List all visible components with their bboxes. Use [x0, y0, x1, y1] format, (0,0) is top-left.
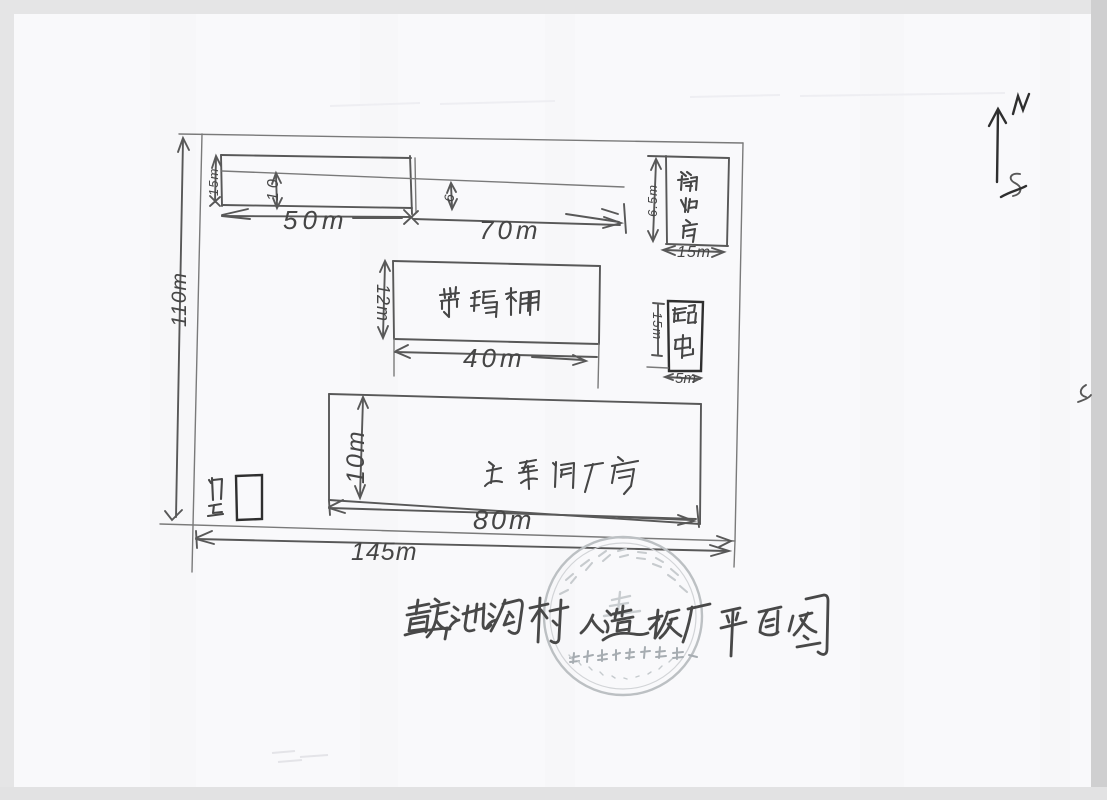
svg-text:6: 6 — [441, 194, 457, 202]
svg-text:110m: 110m — [168, 272, 191, 327]
svg-text:15m: 15m — [206, 168, 221, 196]
svg-text:70m: 70m — [479, 215, 542, 245]
svg-text:5m: 5m — [675, 370, 696, 387]
svg-text:12m: 12m — [373, 284, 393, 322]
svg-text:15m: 15m — [677, 244, 711, 261]
svg-text:10m: 10m — [342, 429, 370, 484]
svg-text:15m: 15m — [650, 312, 665, 340]
svg-text:40m: 40m — [463, 343, 526, 373]
svg-text:80m: 80m — [473, 505, 535, 535]
svg-text:50m: 50m — [283, 205, 349, 235]
svg-text:10: 10 — [265, 175, 282, 201]
svg-text:6.5m: 6.5m — [645, 184, 660, 217]
svg-text:145m: 145m — [351, 538, 418, 566]
